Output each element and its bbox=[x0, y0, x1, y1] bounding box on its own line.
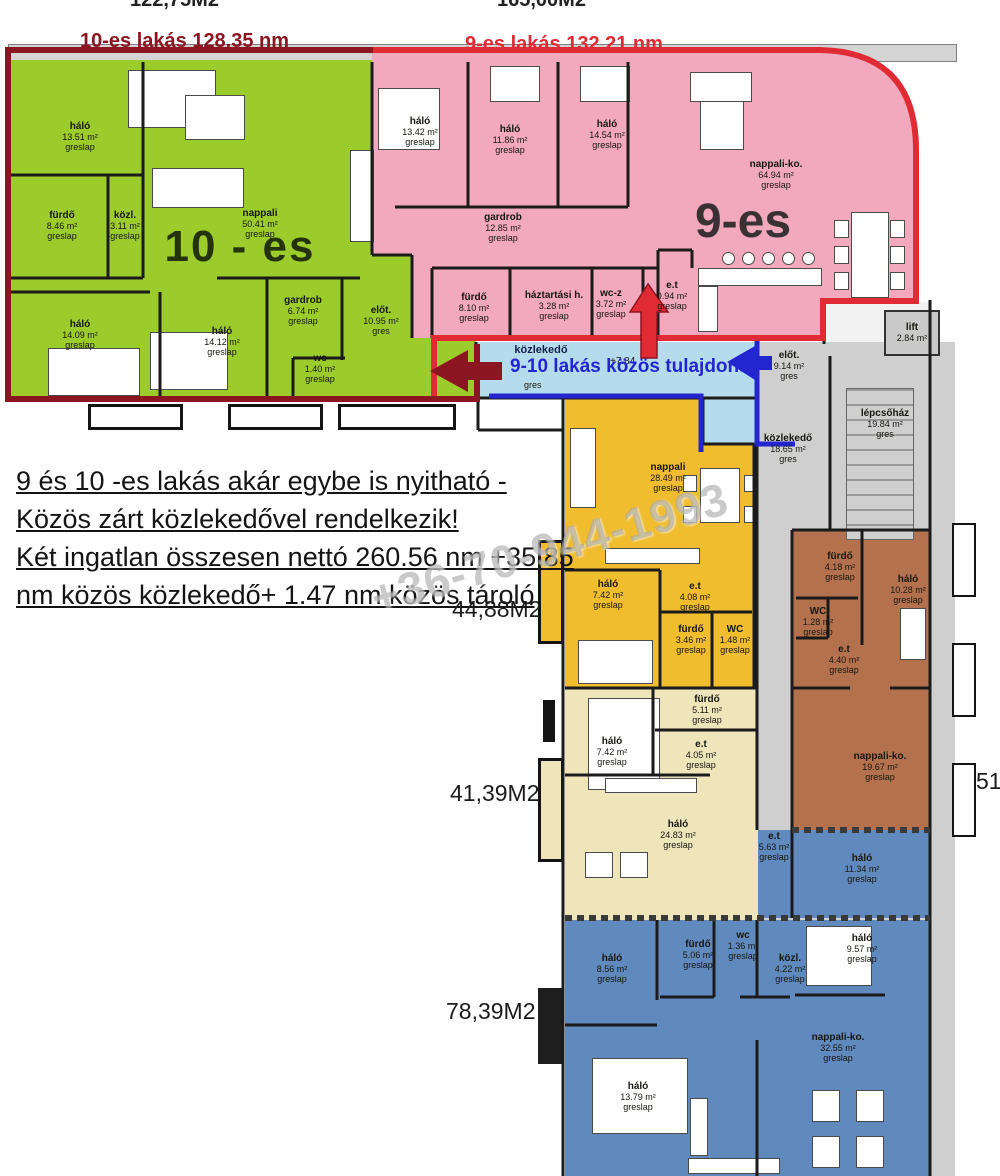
room-area: 1.36 m² bbox=[715, 941, 771, 951]
room-name: e.t bbox=[643, 280, 701, 291]
room-floor: greslap bbox=[48, 340, 112, 350]
room-name: gardrob bbox=[471, 212, 535, 223]
room-area: 3.72 m² bbox=[579, 299, 643, 309]
apt9-big-label: 9-es bbox=[658, 194, 828, 249]
room-area: 9.14 m² bbox=[761, 361, 817, 371]
room-label: háló8.56 m²greslap bbox=[580, 953, 644, 984]
room-name: háló bbox=[576, 579, 640, 590]
room-label: nappali50.41 m²greslap bbox=[228, 208, 292, 239]
room-floor: greslap bbox=[576, 600, 640, 610]
room-area: 19.84 m² bbox=[845, 419, 925, 429]
room-label: háló9.57 m²greslap bbox=[830, 933, 894, 964]
chair bbox=[812, 1090, 840, 1122]
room-floor: greslap bbox=[830, 874, 894, 884]
room-label: háló11.86 m²greslap bbox=[478, 124, 542, 155]
room-floor: greslap bbox=[478, 145, 542, 155]
room-name: lépcsőház bbox=[845, 408, 925, 419]
room-name: fürdő bbox=[808, 551, 872, 562]
room-name: e.t bbox=[749, 831, 799, 842]
room-floor: greslap bbox=[228, 229, 292, 239]
room-floor: greslap bbox=[388, 137, 452, 147]
room-floor: greslap bbox=[749, 852, 799, 862]
room-name: lift bbox=[884, 322, 940, 333]
room-name: előt. bbox=[349, 305, 413, 316]
room-label: háló14.54 m²greslap bbox=[575, 119, 639, 150]
chair bbox=[890, 246, 905, 264]
room-area: 7.42 m² bbox=[576, 590, 640, 600]
apt9-header: 9-es lakás 132.21 nm bbox=[465, 33, 663, 56]
room-name: háló bbox=[876, 574, 940, 585]
room-floor: greslap bbox=[671, 760, 731, 770]
floorplan-canvas: 122,75M2 165,00M2 bbox=[0, 0, 1000, 1176]
wall-marker bbox=[543, 700, 555, 742]
room-label: lift2.84 m² bbox=[884, 322, 940, 343]
balcony-dark bbox=[538, 988, 564, 1064]
room-area: 9.57 m² bbox=[830, 944, 894, 954]
balcony-right bbox=[952, 523, 976, 597]
room-label: háló13.51 m²greslap bbox=[48, 121, 112, 152]
room-name: közl. bbox=[95, 210, 155, 221]
room-floor: greslap bbox=[606, 1102, 670, 1112]
room-name: e.t bbox=[671, 739, 731, 750]
apt10-header: 10-es lakás 128.35 nm bbox=[80, 30, 289, 53]
room-name: nappali-ko. bbox=[802, 1032, 874, 1043]
room-area: 13.51 m² bbox=[48, 132, 112, 142]
room-floor: greslap bbox=[580, 757, 644, 767]
room-name: fürdő bbox=[675, 694, 739, 705]
room-name: WC bbox=[707, 624, 763, 635]
room-floor: greslap bbox=[830, 954, 894, 964]
room-label: lépcsőház19.84 m²gres bbox=[845, 408, 925, 439]
corridor-floor: gres bbox=[524, 380, 542, 390]
room-floor: greslap bbox=[646, 840, 710, 850]
room-label: háló13.79 m²greslap bbox=[606, 1081, 670, 1112]
room-area: 13.42 m² bbox=[388, 127, 452, 137]
room-name: közl. bbox=[760, 953, 820, 964]
balcony bbox=[88, 404, 183, 430]
room-floor: greslap bbox=[707, 645, 763, 655]
room-name: nappali bbox=[228, 208, 292, 219]
room-area: 10.95 m² bbox=[349, 316, 413, 326]
corridor-label: közlekedő bbox=[505, 344, 577, 356]
room-area: 3.11 m² bbox=[95, 221, 155, 231]
chair bbox=[890, 220, 905, 238]
room-area: 0.94 m² bbox=[643, 291, 701, 301]
room-label: háló13.42 m²greslap bbox=[388, 116, 452, 147]
room-area: 11.34 m² bbox=[830, 864, 894, 874]
room-label: e.t4.05 m²greslap bbox=[671, 739, 731, 770]
top-area-label-right: 165,00M2 bbox=[497, 0, 586, 12]
room-label: háló7.42 m²greslap bbox=[580, 736, 644, 767]
room-name: nappali bbox=[632, 462, 704, 473]
room-area: 14.09 m² bbox=[48, 330, 112, 340]
corridor-entry-area bbox=[703, 398, 757, 444]
room-label: e.t4.08 m²greslap bbox=[665, 581, 725, 612]
room-area: 4.40 m² bbox=[814, 655, 874, 665]
room-label: nappali-ko.32.55 m²greslap bbox=[802, 1032, 874, 1063]
room-label: WC1.48 m²greslap bbox=[707, 624, 763, 655]
room-area: 10.28 m² bbox=[876, 585, 940, 595]
room-name: gardrob bbox=[271, 295, 335, 306]
room-name: WC bbox=[790, 606, 846, 617]
room-label: háló10.28 m²greslap bbox=[876, 574, 940, 605]
room-name: fürdő bbox=[30, 210, 94, 221]
room-area: 64.94 m² bbox=[740, 170, 812, 180]
room-label: nappali-ko.64.94 m²greslap bbox=[740, 159, 812, 190]
room-name: nappali-ko. bbox=[740, 159, 812, 170]
stool bbox=[782, 252, 795, 265]
room-floor: greslap bbox=[30, 231, 94, 241]
room-floor: greslap bbox=[580, 974, 644, 984]
room-label: háló7.42 m²greslap bbox=[576, 579, 640, 610]
room-area: 4.18 m² bbox=[808, 562, 872, 572]
room-name: wc-z bbox=[579, 288, 643, 299]
apt10-area-wc-strip bbox=[412, 338, 476, 400]
room-floor: greslap bbox=[802, 1053, 874, 1063]
room-label: fürdő8.10 m²greslap bbox=[442, 292, 506, 323]
room-label: wc-z3.72 m²greslap bbox=[579, 288, 643, 319]
area-label-right-partial: 51 bbox=[976, 768, 1000, 795]
room-area: 2.84 m² bbox=[884, 333, 940, 343]
room-name: fürdő bbox=[442, 292, 506, 303]
balcony bbox=[228, 404, 323, 430]
stool bbox=[762, 252, 775, 265]
room-name: e.t bbox=[665, 581, 725, 592]
stool bbox=[722, 252, 735, 265]
room-name: háló bbox=[580, 736, 644, 747]
room-floor: greslap bbox=[814, 665, 874, 675]
room-label: közl.3.11 m²greslap bbox=[95, 210, 155, 241]
chair bbox=[812, 1136, 840, 1168]
room-label: háló14.09 m²greslap bbox=[48, 319, 112, 350]
room-area: 1.28 m² bbox=[790, 617, 846, 627]
kitchen-counter bbox=[698, 268, 822, 286]
room-name: wc bbox=[715, 930, 771, 941]
room-label: háló24.83 m²greslap bbox=[646, 819, 710, 850]
stool bbox=[802, 252, 815, 265]
room-label: wc1.40 m²greslap bbox=[288, 353, 352, 384]
chair bbox=[890, 272, 905, 290]
room-area: 12.85 m² bbox=[471, 223, 535, 233]
armchair bbox=[620, 852, 648, 878]
balcony-cream bbox=[538, 758, 564, 862]
kitchen-counter bbox=[688, 1158, 780, 1174]
room-floor: greslap bbox=[790, 627, 846, 637]
bed bbox=[578, 640, 653, 684]
room-label: fürdő5.11 m²greslap bbox=[675, 694, 739, 725]
room-floor: greslap bbox=[288, 374, 352, 384]
kitchen-counter bbox=[690, 1098, 708, 1156]
room-floor: greslap bbox=[666, 960, 730, 970]
room-floor: greslap bbox=[760, 974, 820, 984]
room-floor: greslap bbox=[675, 715, 739, 725]
room-label: háló11.34 m²greslap bbox=[830, 853, 894, 884]
chair bbox=[834, 220, 849, 238]
wardrobe bbox=[605, 778, 697, 793]
room-area: 4.22 m² bbox=[760, 964, 820, 974]
room-label: közl.4.22 m²greslap bbox=[760, 953, 820, 984]
room-name: közlekedő bbox=[752, 433, 824, 444]
room-area: 19.67 m² bbox=[844, 762, 916, 772]
room-floor: greslap bbox=[48, 142, 112, 152]
room-area: 14.54 m² bbox=[575, 130, 639, 140]
room-name: előt. bbox=[761, 350, 817, 361]
wardrobe bbox=[490, 66, 540, 102]
room-area: 8.56 m² bbox=[580, 964, 644, 974]
room-area: 14.12 m² bbox=[190, 337, 254, 347]
cabinet bbox=[700, 98, 744, 150]
room-area: 5.63 m² bbox=[749, 842, 799, 852]
room-floor: gres bbox=[349, 326, 413, 336]
room-name: háló bbox=[606, 1081, 670, 1092]
area-label-blue: 78,39M2 bbox=[446, 998, 536, 1025]
chair bbox=[856, 1090, 884, 1122]
room-floor: greslap bbox=[271, 316, 335, 326]
room-area: 13.79 m² bbox=[606, 1092, 670, 1102]
room-label: előt.9.14 m²gres bbox=[761, 350, 817, 381]
chair bbox=[834, 246, 849, 264]
room-area: 4.05 m² bbox=[671, 750, 731, 760]
room-area: 24.83 m² bbox=[646, 830, 710, 840]
room-name: nappali-ko. bbox=[844, 751, 916, 762]
balcony-right bbox=[952, 763, 976, 837]
table bbox=[185, 95, 245, 140]
room-floor: greslap bbox=[95, 231, 155, 241]
area-label-cream: 41,39M2 bbox=[450, 780, 540, 807]
stool bbox=[742, 252, 755, 265]
sofa bbox=[152, 168, 244, 208]
room-name: háló bbox=[190, 326, 254, 337]
room-floor: greslap bbox=[740, 180, 812, 190]
room-area: 7.42 m² bbox=[580, 747, 644, 757]
room-name: e.t bbox=[814, 644, 874, 655]
room-floor: greslap bbox=[190, 347, 254, 357]
kitchen-counter bbox=[900, 608, 926, 660]
armchair bbox=[585, 852, 613, 878]
room-area: 4.08 m² bbox=[665, 592, 725, 602]
room-name: háló bbox=[48, 319, 112, 330]
room-label: gardrob6.74 m²greslap bbox=[271, 295, 335, 326]
room-label: fürdő8.46 m²greslap bbox=[30, 210, 94, 241]
room-label: fürdő4.18 m²greslap bbox=[808, 551, 872, 582]
room-area: 1.48 m² bbox=[707, 635, 763, 645]
sofa bbox=[690, 72, 752, 102]
room-name: háló bbox=[575, 119, 639, 130]
room-area: 50.41 m² bbox=[228, 219, 292, 229]
room-label: gardrob12.85 m²greslap bbox=[471, 212, 535, 243]
chair bbox=[834, 272, 849, 290]
room-floor: gres bbox=[761, 371, 817, 381]
kitchen-counter bbox=[698, 286, 718, 332]
room-area: 32.55 m² bbox=[802, 1043, 874, 1053]
note-line-1: 9 és 10 -es lakás akár egybe is nyitható… bbox=[16, 466, 507, 497]
room-floor: greslap bbox=[876, 595, 940, 605]
room-floor: greslap bbox=[471, 233, 535, 243]
room-area: 6.74 m² bbox=[271, 306, 335, 316]
chair bbox=[856, 1136, 884, 1168]
sofa bbox=[570, 428, 596, 508]
note-line-2: Közös zárt közlekedővel rendelkezik! bbox=[16, 504, 459, 535]
room-name: háló bbox=[830, 853, 894, 864]
room-label: nappali-ko.19.67 m²greslap bbox=[844, 751, 916, 782]
bed bbox=[48, 348, 140, 396]
room-area: 8.10 m² bbox=[442, 303, 506, 313]
room-area: 1.40 m² bbox=[288, 364, 352, 374]
room-floor: gres bbox=[845, 429, 925, 439]
room-floor: greslap bbox=[844, 772, 916, 782]
room-area: 8.46 m² bbox=[30, 221, 94, 231]
balcony bbox=[338, 404, 456, 430]
shared-ownership-annotation: 9-10 lakás közös tulajdona bbox=[510, 356, 750, 378]
room-area: 11.86 m² bbox=[478, 135, 542, 145]
room-floor: greslap bbox=[575, 140, 639, 150]
balcony-right bbox=[952, 643, 976, 717]
room-floor: greslap bbox=[643, 301, 701, 311]
room-floor: greslap bbox=[808, 572, 872, 582]
room-floor: greslap bbox=[665, 602, 725, 612]
room-name: háló bbox=[646, 819, 710, 830]
room-label: előt.10.95 m²gres bbox=[349, 305, 413, 336]
room-name: wc bbox=[288, 353, 352, 364]
room-label: e.t0.94 m²greslap bbox=[643, 280, 701, 311]
room-floor: greslap bbox=[579, 309, 643, 319]
top-area-label-left: 122,75M2 bbox=[130, 0, 219, 12]
room-label: e.t5.63 m²greslap bbox=[749, 831, 799, 862]
room-label: háló14.12 m²greslap bbox=[190, 326, 254, 357]
room-label: e.t4.40 m²greslap bbox=[814, 644, 874, 675]
room-area: 5.11 m² bbox=[675, 705, 739, 715]
wardrobe bbox=[580, 66, 630, 102]
room-floor: greslap bbox=[442, 313, 506, 323]
room-name: háló bbox=[388, 116, 452, 127]
room-name: háló bbox=[580, 953, 644, 964]
room-name: háló bbox=[478, 124, 542, 135]
room-name: háló bbox=[830, 933, 894, 944]
room-label: WC1.28 m²greslap bbox=[790, 606, 846, 637]
dining-table bbox=[851, 212, 889, 298]
room-name: háló bbox=[48, 121, 112, 132]
